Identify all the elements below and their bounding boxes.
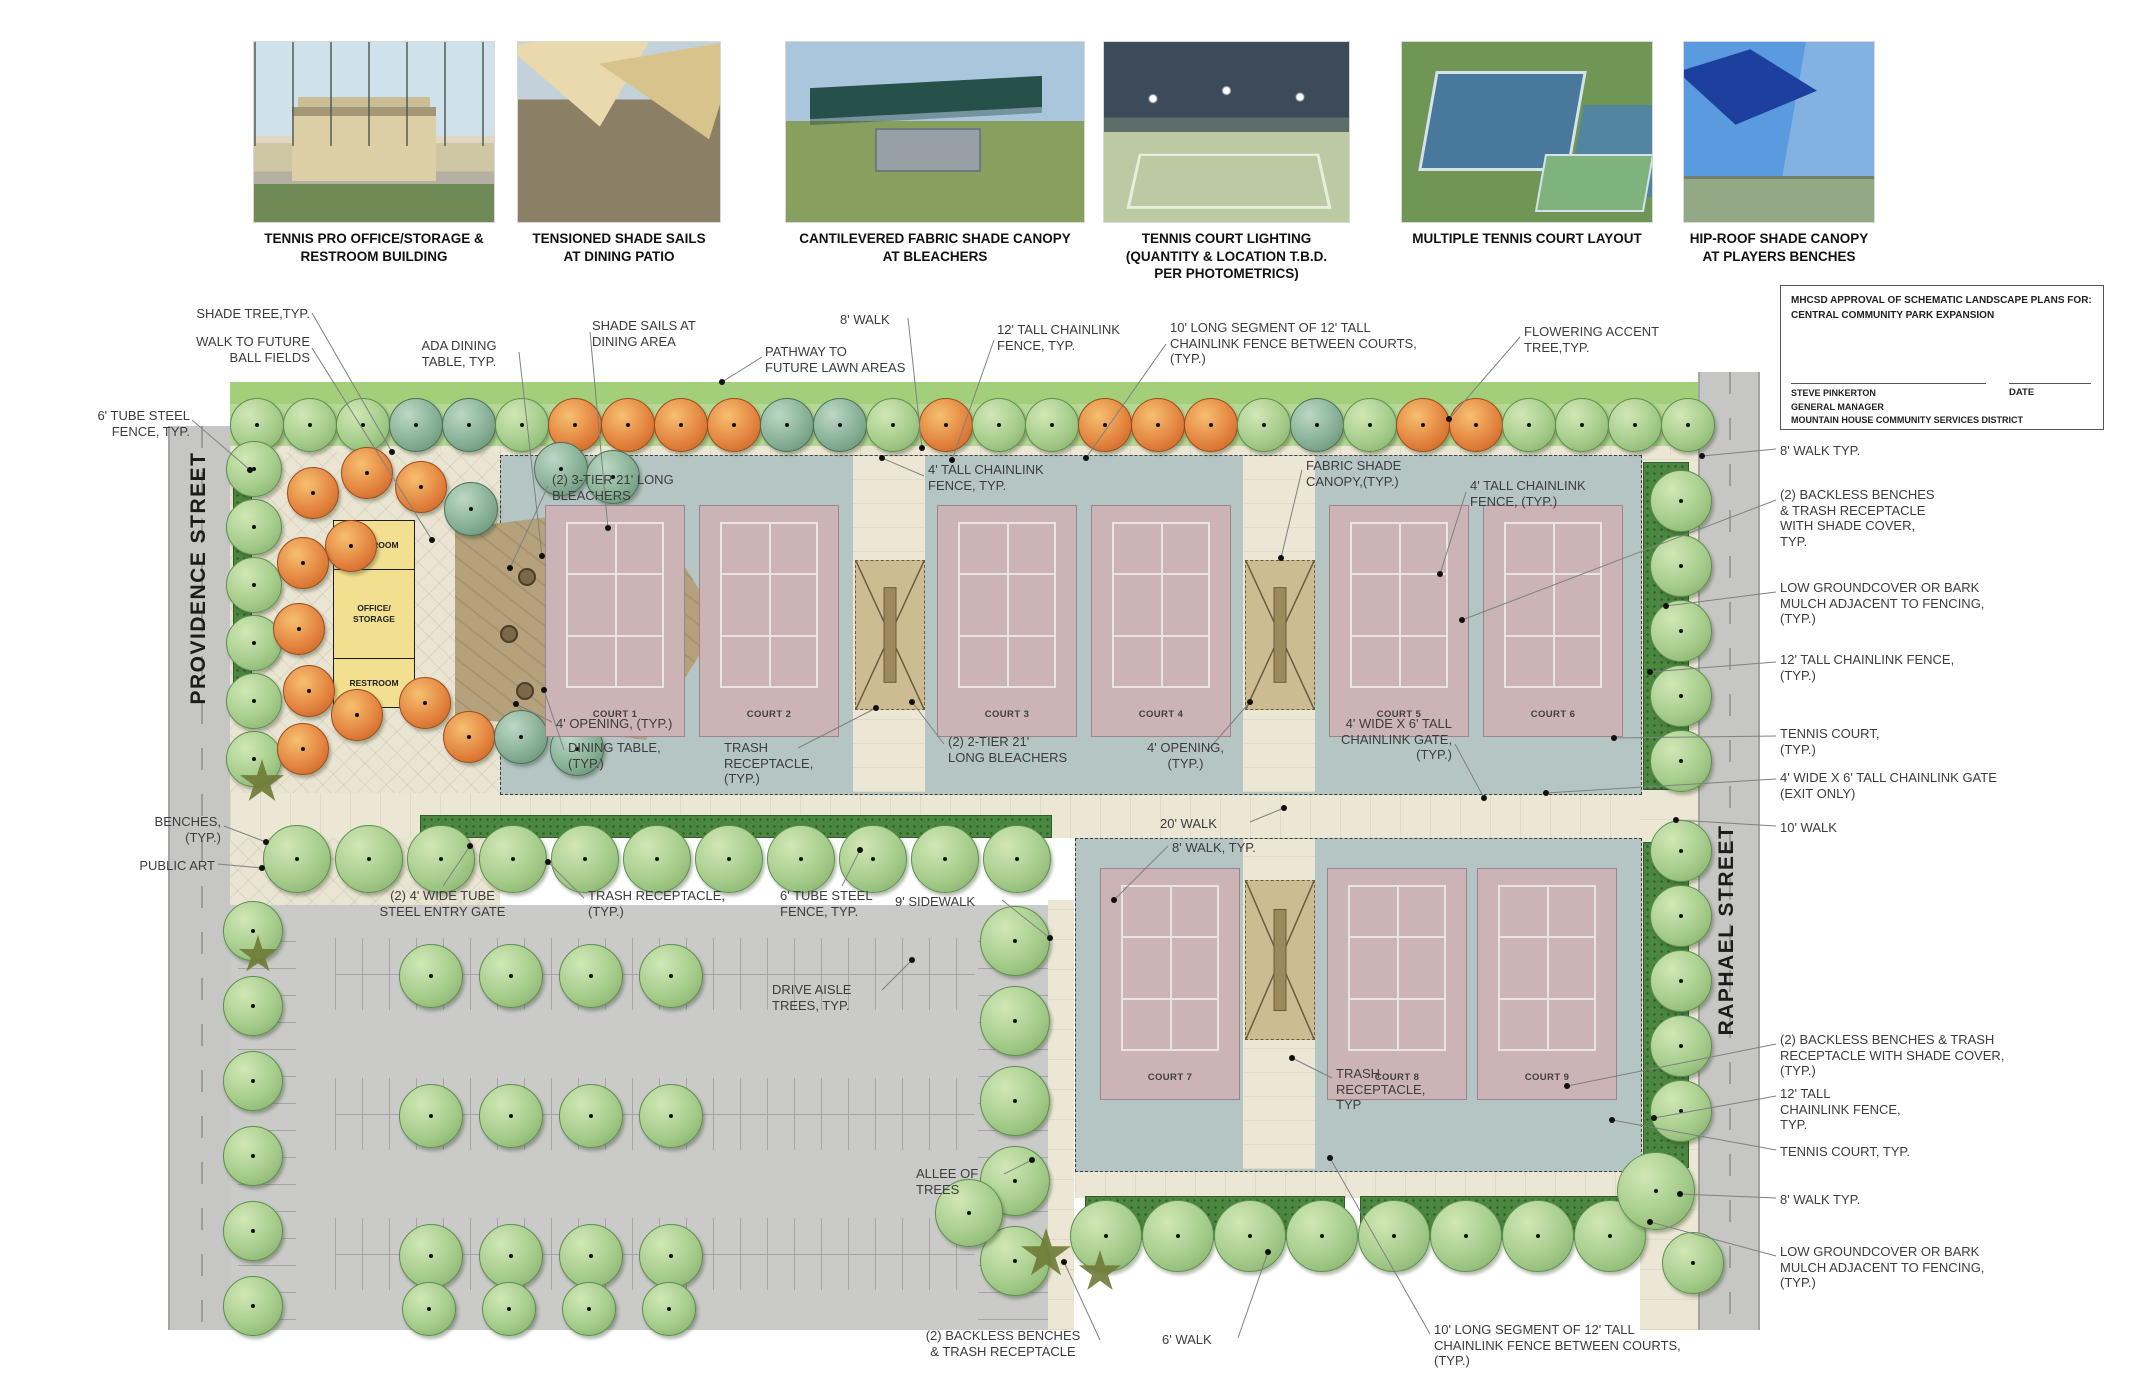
tennis-court: COURT 6 (1483, 505, 1623, 737)
callout-label: SHADE TREE,TYP. (140, 306, 310, 322)
signer-name: STEVE PINKERTON (1791, 387, 2023, 401)
court-label: COURT 6 (1484, 709, 1622, 720)
callout-label: BENCHES, (TYP.) (116, 814, 221, 845)
tree-icon (1070, 1200, 1142, 1272)
leader-dot (1564, 1083, 1570, 1089)
tree-icon (341, 447, 393, 499)
tree-icon (1396, 398, 1450, 452)
court-line-markings (958, 522, 1056, 688)
callout-label: WALK TO FUTURE BALL FIELDS (140, 334, 310, 365)
court-label: COURT 7 (1101, 1072, 1239, 1083)
tree-icon (395, 461, 447, 513)
photo-caption: TENNIS COURT LIGHTING (QUANTITY & LOCATI… (1069, 230, 1384, 283)
court-line-markings (1112, 522, 1210, 688)
fabric-shade-canopy (855, 560, 925, 710)
callout-label: 4' TALL CHAINLINK FENCE, (TYP.) (1470, 478, 1625, 509)
leader-dot (1699, 453, 1705, 459)
callout-label: 6' TUBE STEEL FENCE, TYP. (58, 408, 190, 439)
leader-dot (1278, 555, 1284, 561)
callout-label: 12' TALL CHAINLINK FENCE, TYP. (1780, 1086, 1950, 1133)
callout-label: 4' WIDE X 6' TALL CHAINLINK GATE, (TYP.) (1290, 716, 1452, 763)
tree-icon (402, 1282, 456, 1336)
tree-icon (226, 499, 282, 555)
tree-icon (866, 398, 920, 452)
tree-icon (972, 398, 1026, 452)
tree-icon (1430, 1200, 1502, 1272)
tree-icon (980, 1066, 1050, 1136)
leader-dot (1265, 1249, 1271, 1255)
leader-dot (1111, 897, 1117, 903)
tree-icon (287, 467, 339, 519)
tree-icon (223, 1201, 283, 1261)
tree-icon (760, 398, 814, 452)
callout-label: 12' TALL CHAINLINK FENCE, TYP. (997, 322, 1162, 353)
approval-title-block: MHCSD APPROVAL OF SCHEMATIC LANDSCAPE PL… (1780, 285, 2104, 430)
signer-block: STEVE PINKERTON GENERAL MANAGER MOUNTAIN… (1791, 387, 2023, 428)
tree-icon (495, 398, 549, 452)
callout-label: 4' OPENING, (TYP.) (556, 716, 706, 732)
leader-dot (1029, 1157, 1035, 1163)
leader-dot (879, 455, 885, 461)
tree-icon (1650, 535, 1712, 597)
tree-icon (494, 710, 548, 764)
tree-icon (1650, 950, 1712, 1012)
court-label: COURT 2 (700, 709, 838, 720)
tree-icon (223, 1276, 283, 1336)
leader-dot (507, 565, 513, 571)
leader-dot (1446, 416, 1452, 422)
tennis-court: COURT 5 (1329, 505, 1469, 737)
tree-icon (389, 398, 443, 452)
callout-label: (2) BACKLESS BENCHES & TRASH RECEPTACLE (908, 1328, 1098, 1359)
photo-caption: HIP-ROOF SHADE CANOPY AT PLAYERS BENCHES (1649, 230, 1909, 265)
callout-label: 10' LONG SEGMENT OF 12' TALL CHAINLINK F… (1434, 1322, 1724, 1369)
leader-dot (1061, 1259, 1067, 1265)
leader-dot (429, 537, 435, 543)
signature-line (1791, 383, 1986, 384)
tree-icon (1650, 600, 1712, 662)
landscape-plan-sheet: TENNIS PRO OFFICE/STORAGE & RESTROOM BUI… (0, 0, 2146, 1396)
tree-icon (399, 944, 463, 1008)
callout-label: PUBLIC ART (110, 858, 215, 874)
tennis-court: COURT 2 (699, 505, 839, 737)
tree-icon (1650, 1080, 1712, 1142)
tree-icon (482, 1282, 536, 1336)
tree-icon (695, 825, 763, 893)
photo-hip-roof-canopy (1684, 42, 1874, 222)
walk-6ft (1075, 1170, 1698, 1198)
callout-label: LOW GROUNDCOVER OR BARK MULCH ADJACENT T… (1780, 1244, 2020, 1291)
leader-dot (263, 839, 269, 845)
tree-icon (639, 1084, 703, 1148)
photo-shade-sails (518, 42, 720, 222)
tree-icon (283, 398, 337, 452)
tree-icon (442, 398, 496, 452)
tree-icon (399, 1084, 463, 1148)
callout-label: (2) 2-TIER 21' LONG BLEACHERS (948, 734, 1098, 765)
tree-icon (226, 441, 282, 497)
dining-table-icon (500, 625, 518, 643)
tennis-court: COURT 3 (937, 505, 1077, 737)
photo-cantilevered-canopy (786, 42, 1084, 222)
leader-dot (1459, 617, 1465, 623)
tree-icon (601, 398, 655, 452)
tree-icon (1358, 1200, 1430, 1272)
signer-org: MOUNTAIN HOUSE COMMUNITY SERVICES DISTRI… (1791, 414, 2023, 428)
tree-icon (223, 976, 283, 1036)
tree-icon (1608, 398, 1662, 452)
tree-icon (559, 944, 623, 1008)
court-line-markings (1504, 522, 1602, 688)
tree-icon (623, 825, 691, 893)
photo-multiple-courts-aerial (1402, 42, 1652, 222)
court-label: COURT 9 (1478, 1072, 1616, 1083)
leader-dot (909, 699, 915, 705)
leader-dot (1647, 669, 1653, 675)
tree-icon (1025, 398, 1079, 452)
tree-icon (1343, 398, 1397, 452)
leader-dot (545, 859, 551, 865)
callout-label: PATHWAY TO FUTURE LAWN AREAS (765, 344, 955, 375)
tree-icon (639, 1224, 703, 1288)
callout-label: TRASH RECEPTACLE, TYP (1336, 1066, 1461, 1113)
callout-label: FLOWERING ACCENT TREE,TYP. (1524, 324, 1699, 355)
callout-label: 8' WALK, TYP. (1172, 840, 1297, 856)
title-block-line1: MHCSD APPROVAL OF SCHEMATIC LANDSCAPE PL… (1791, 294, 2095, 309)
callout-label: 9' SIDEWALK (895, 894, 1005, 910)
tree-icon (1555, 398, 1609, 452)
leader-dot (857, 847, 863, 853)
callout-label: TRASH RECEPTACLE, (TYP.) (588, 888, 763, 919)
callout-label: 20' WALK (1160, 816, 1252, 832)
tree-icon (983, 825, 1051, 893)
tree-icon (911, 825, 979, 893)
leader-dot (1481, 795, 1487, 801)
tree-icon (839, 825, 907, 893)
leader-dot (919, 445, 925, 451)
tree-icon (551, 825, 619, 893)
tree-icon (919, 398, 973, 452)
tree-icon (443, 711, 495, 763)
leader-dot (1609, 1117, 1615, 1123)
callout-label: ALLEE OF TREES (916, 1166, 1008, 1197)
tree-icon (813, 398, 867, 452)
callout-label: DINING TABLE, (TYP.) (568, 740, 703, 771)
tree-icon (479, 1084, 543, 1148)
leader-dot (1083, 455, 1089, 461)
leader-dot (1289, 1055, 1295, 1061)
office-storage-label: OFFICE/ STORAGE (334, 570, 414, 659)
tree-icon (707, 398, 761, 452)
dining-table-icon (518, 568, 536, 586)
leader-dot (1543, 790, 1549, 796)
photo-tennis-pro-office (254, 42, 494, 222)
callout-label: 10' WALK (1780, 820, 1880, 836)
tree-icon (479, 944, 543, 1008)
tennis-court: COURT 9 (1477, 868, 1617, 1100)
callout-label: FABRIC SHADE CANOPY,(TYP.) (1306, 458, 1441, 489)
photo-caption: MULTIPLE TENNIS COURT LAYOUT (1367, 230, 1687, 248)
tree-icon (1142, 1200, 1214, 1272)
callout-label: TRASH RECEPTACLE, (TYP.) (724, 740, 849, 787)
tennis-court: COURT 1 (545, 505, 685, 737)
street-label-providence: PROVIDENCE STREET (187, 418, 211, 738)
tree-icon (1502, 1200, 1574, 1272)
photo-caption: TENSIONED SHADE SAILS AT DINING PATIO (483, 230, 755, 265)
callout-label: (2) 3-TIER 21' LONG BLEACHERS (552, 472, 717, 503)
fabric-shade-canopy (1245, 560, 1315, 710)
leader-dot (1281, 805, 1287, 811)
tree-icon (399, 677, 451, 729)
tree-icon (1214, 1200, 1286, 1272)
tree-icon (1286, 1200, 1358, 1272)
callout-label: 10' LONG SEGMENT OF 12' TALL CHAINLINK F… (1170, 320, 1440, 367)
tree-icon (559, 1224, 623, 1288)
street-label-raphael: RAPHAEL STREET (1715, 790, 1739, 1070)
tree-icon (1661, 398, 1715, 452)
callout-label: 12' TALL CHAINLINK FENCE, (TYP.) (1780, 652, 2010, 683)
tree-icon (479, 825, 547, 893)
leader-dot (513, 701, 519, 707)
tree-icon (1131, 398, 1185, 452)
leader-dot (605, 525, 611, 531)
tree-icon (980, 906, 1050, 976)
callout-label: LOW GROUNDCOVER OR BARK MULCH ADJACENT T… (1780, 580, 2020, 627)
callout-label: 4' TALL CHAINLINK FENCE, TYP. (928, 462, 1083, 493)
leader-dot (1663, 603, 1669, 609)
court-line-markings (1121, 885, 1219, 1051)
callout-label: SHADE SAILS AT DINING AREA (592, 318, 727, 349)
leader-dot (1651, 1115, 1657, 1121)
leader-dot (541, 687, 547, 693)
leader-dot (1611, 735, 1617, 741)
dining-table-icon (516, 682, 534, 700)
tree-icon (654, 398, 708, 452)
tree-icon (1650, 470, 1712, 532)
tree-icon (331, 689, 383, 741)
leader-dot (539, 553, 545, 559)
leader-dot (1437, 571, 1443, 577)
tree-icon (223, 1126, 283, 1186)
leader-dot (1673, 817, 1679, 823)
tree-icon (1290, 398, 1344, 452)
tree-icon (980, 986, 1050, 1056)
tree-icon (1650, 820, 1712, 882)
tree-icon (336, 398, 390, 452)
tree-icon (562, 1282, 616, 1336)
tree-icon (767, 825, 835, 893)
leader-dot (259, 865, 265, 871)
tree-icon (277, 723, 329, 775)
tree-icon (559, 1084, 623, 1148)
tree-icon (273, 603, 325, 655)
court-line-markings (566, 522, 664, 688)
date-line (2009, 383, 2091, 384)
tree-icon (277, 537, 329, 589)
title-block-line2: CENTRAL COMMUNITY PARK EXPANSION (1791, 309, 2095, 324)
leader-dot (873, 705, 879, 711)
court-line-markings (1350, 522, 1448, 688)
tree-icon (444, 482, 498, 536)
tree-icon (1502, 398, 1556, 452)
tree-icon (1650, 730, 1712, 792)
tree-icon (1650, 885, 1712, 947)
leader-dot (389, 449, 395, 455)
tennis-court: COURT 7 (1100, 868, 1240, 1100)
tree-icon (407, 825, 475, 893)
callout-label: TENNIS COURT, (TYP.) (1780, 726, 1940, 757)
tree-icon (226, 557, 282, 613)
tree-icon (1449, 398, 1503, 452)
title-block-heading: MHCSD APPROVAL OF SCHEMATIC LANDSCAPE PL… (1791, 294, 2095, 323)
callout-label: (2) 4' WIDE TUBE STEEL ENTRY GATE (360, 888, 525, 919)
callout-label: 4' WIDE X 6' TALL CHAINLINK GATE (EXIT O… (1780, 770, 2080, 801)
tree-icon (1237, 398, 1291, 452)
tree-icon (1617, 1152, 1695, 1230)
tree-icon (1184, 398, 1238, 452)
tree-icon (263, 825, 331, 893)
callout-label: 4' OPENING, (TYP.) (1128, 740, 1243, 771)
court-line-markings (1348, 885, 1446, 1051)
tree-icon (335, 825, 403, 893)
leader-dot (719, 379, 725, 385)
callout-label: ADA DINING TABLE, TYP. (400, 338, 518, 369)
tree-icon (642, 1282, 696, 1336)
callout-label: (2) BACKLESS BENCHES & TRASH RECEPTACLE … (1780, 1032, 2040, 1079)
callout-label: 8' WALK TYP. (1780, 443, 1930, 459)
court-label: COURT 4 (1092, 709, 1230, 720)
callout-label: 6' WALK (1162, 1332, 1242, 1348)
court-label: COURT 3 (938, 709, 1076, 720)
tree-icon (223, 1051, 283, 1111)
tennis-court: COURT 4 (1091, 505, 1231, 737)
photo-caption: CANTILEVERED FABRIC SHADE CANOPY AT BLEA… (751, 230, 1119, 265)
tree-icon (399, 1224, 463, 1288)
leader-dot (1327, 1155, 1333, 1161)
tree-icon (1650, 665, 1712, 727)
leader-dot (909, 957, 915, 963)
callout-label: (2) BACKLESS BENCHES & TRASH RECEPTACLE … (1780, 487, 1990, 549)
tree-icon (1650, 1015, 1712, 1077)
callout-label: 8' WALK TYP. (1780, 1192, 1920, 1208)
tree-icon (325, 520, 377, 572)
leader-dot (247, 467, 253, 473)
court-line-markings (1498, 885, 1596, 1051)
photo-court-lighting (1104, 42, 1349, 222)
leader-dot (1677, 1191, 1683, 1197)
court-line-markings (720, 522, 818, 688)
tree-icon (1662, 1232, 1724, 1294)
tree-icon (479, 1224, 543, 1288)
callout-label: 8' WALK (840, 312, 910, 328)
tree-icon (226, 673, 282, 729)
callout-label: DRIVE AISLE TREES, TYP. (772, 982, 904, 1013)
callout-label: TENNIS COURT, TYP. (1780, 1144, 1970, 1160)
tree-icon (639, 944, 703, 1008)
leader-dot (1247, 699, 1253, 705)
fabric-shade-canopy (1245, 880, 1315, 1040)
leader-dot (1647, 1219, 1653, 1225)
tree-icon (1078, 398, 1132, 452)
leader-dot (467, 843, 473, 849)
tree-icon (283, 665, 335, 717)
leader-dot (1047, 935, 1053, 941)
signer-title: GENERAL MANAGER (1791, 401, 2023, 415)
